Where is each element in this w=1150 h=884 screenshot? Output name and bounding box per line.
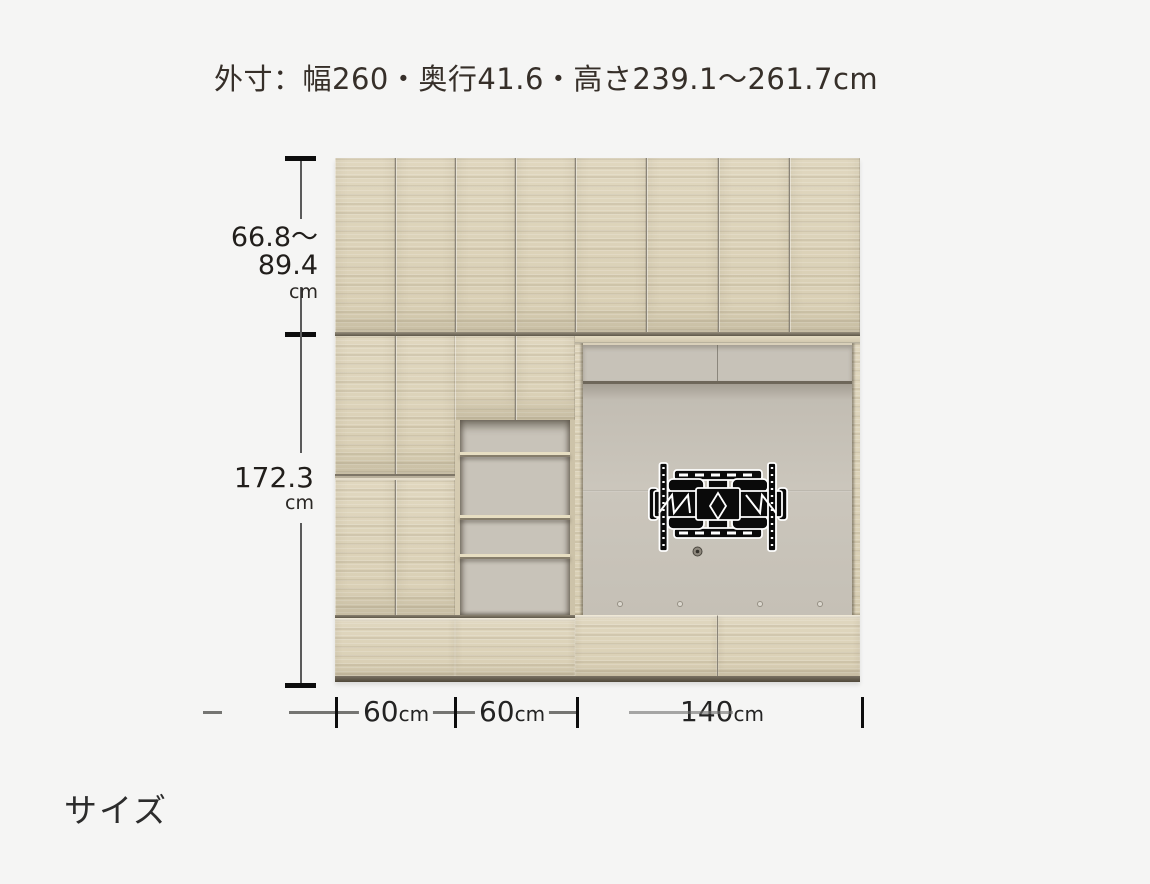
dimension-line — [289, 711, 367, 714]
lower-cabinet-row — [335, 336, 860, 676]
upper-door — [395, 158, 455, 332]
cabinet-door — [335, 336, 395, 474]
middle-shelf-column — [455, 336, 575, 676]
dimension-line — [300, 287, 302, 453]
size-diagram: 外寸：幅260・奥行41.6・高さ239.1〜261.7cm — [0, 0, 1150, 884]
upper-height-label: 66.8〜89.4 cm — [178, 224, 318, 303]
cabinet-door — [335, 480, 395, 615]
cabinet-door — [395, 480, 455, 615]
width-label-middle: 60cm — [475, 695, 549, 728]
shelf-board — [460, 452, 570, 457]
tv-mount-bracket-icon — [648, 462, 788, 558]
dimension-tick — [576, 697, 579, 728]
dimension-line — [300, 523, 302, 683]
bottom-drawer — [335, 618, 455, 676]
dimension-tick — [861, 697, 864, 728]
open-shelf-recess — [455, 420, 575, 615]
tv-section-top-frame — [575, 336, 860, 343]
dimension-tick — [335, 697, 338, 728]
tv-drawer — [575, 615, 718, 676]
upper-door — [718, 158, 789, 332]
upper-door — [455, 158, 515, 332]
dimension-cap — [285, 683, 316, 688]
tv-open-bay — [575, 343, 860, 615]
screw-hole — [758, 602, 762, 606]
tv-drawer — [718, 615, 860, 676]
upper-door — [575, 158, 646, 332]
left-cabinet-column — [335, 336, 455, 676]
dimension-line — [629, 711, 733, 714]
screw-hole — [818, 602, 822, 606]
upper-door — [335, 158, 395, 332]
tv-side-frame — [575, 343, 583, 615]
shelf-board — [460, 515, 570, 520]
upper-cabinet-row — [335, 158, 860, 332]
upper-door — [789, 158, 860, 332]
lower-height-label: 172.3 cm — [174, 463, 314, 514]
screw-hole — [618, 602, 622, 606]
tv-side-frame — [852, 343, 860, 615]
upper-door — [515, 158, 575, 332]
tv-back-panel — [583, 384, 852, 615]
cabinet-door — [515, 336, 575, 420]
dimension-dash — [203, 711, 222, 714]
tv-section — [575, 336, 860, 676]
outer-dimensions-title: 外寸：幅260・奥行41.6・高さ239.1〜261.7cm — [214, 56, 878, 98]
screw-hole — [678, 602, 682, 606]
bottom-drawer — [455, 618, 575, 676]
tv-top-panel — [583, 343, 852, 384]
base-plinth — [335, 676, 860, 682]
size-section-heading: サイズ — [64, 784, 168, 832]
width-label-left: 60cm — [359, 695, 433, 728]
dimension-line — [300, 161, 302, 219]
cabinet-door — [455, 336, 515, 420]
dimension-tick — [454, 697, 457, 728]
upper-door — [646, 158, 717, 332]
wall-storage-unit — [335, 158, 860, 682]
shelf-board — [460, 554, 570, 559]
cabinet-door — [395, 336, 455, 474]
